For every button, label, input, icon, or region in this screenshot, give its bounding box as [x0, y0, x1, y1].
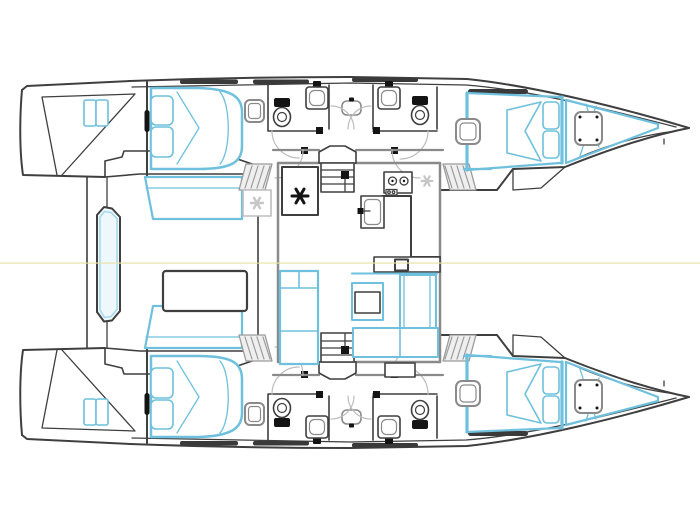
- stove: [384, 172, 412, 195]
- aft-cabin-bed: [151, 88, 242, 169]
- head-sink: [378, 81, 400, 109]
- catamaran-floor-plan: [0, 0, 700, 525]
- cockpit-door-sill: [385, 363, 415, 377]
- forward-cabin: [467, 93, 658, 170]
- nav-station: [374, 257, 440, 272]
- waterline-centerline: [0, 262, 700, 264]
- companionway-stairs: [319, 146, 356, 192]
- floor-plan-canvas: [0, 0, 700, 525]
- aft-saloon-bench: [353, 328, 438, 357]
- head-toilet: [412, 96, 429, 125]
- galley-sink-cabinet: [358, 196, 385, 228]
- stern-hatch-pair: [84, 100, 108, 126]
- porthole-aft: [245, 100, 264, 122]
- head-toilet: [274, 98, 291, 127]
- bow-v-berth: [566, 100, 658, 163]
- forward-berth: [507, 102, 559, 161]
- head-aft: [268, 81, 328, 158]
- fridge: [282, 167, 318, 215]
- side-settee: [400, 275, 436, 328]
- head-forward: [373, 81, 437, 159]
- shower-stall: [329, 85, 373, 129]
- cabin-door-handle: [145, 110, 150, 132]
- cool-box-symbol: [422, 176, 433, 185]
- coffee-table: [352, 283, 383, 320]
- head-sink: [306, 81, 328, 109]
- porthole-forward: [456, 119, 480, 144]
- cabin-settee: [145, 177, 242, 219]
- dinette-table: [163, 271, 247, 311]
- aft-cabin: [145, 82, 243, 219]
- cool-box: [243, 190, 271, 216]
- hull-step-well-aft: [239, 164, 272, 190]
- dinette-settee: [280, 271, 318, 364]
